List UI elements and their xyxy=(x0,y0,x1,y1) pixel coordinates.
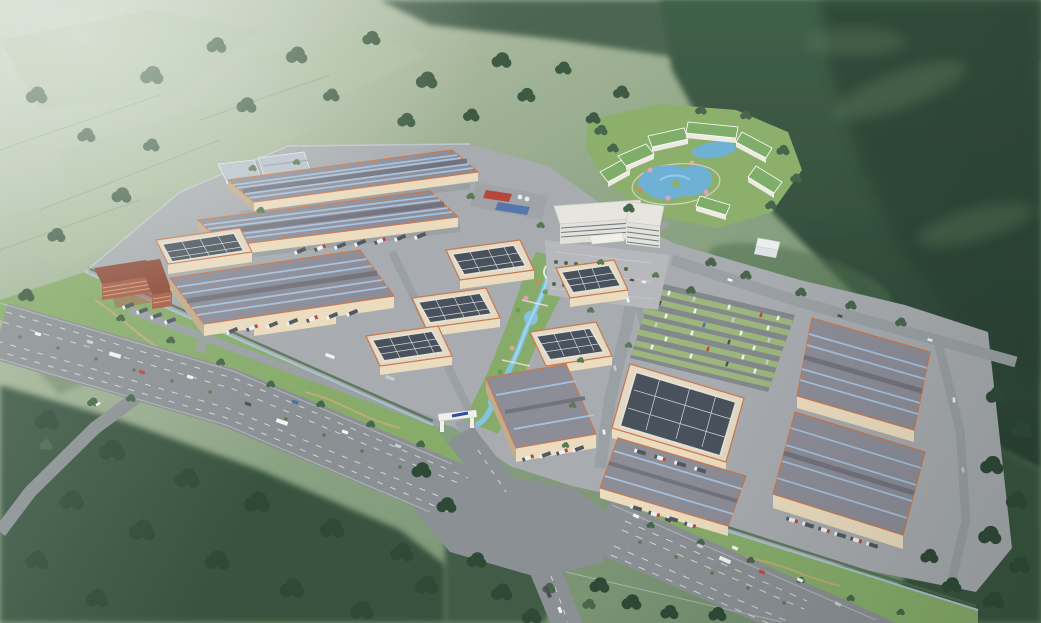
office-headquarters xyxy=(554,200,664,248)
aerial-render-industrial-park: Aerial rendering of an industrial logist… xyxy=(0,0,1041,623)
render-canvas: Aerial rendering of an industrial logist… xyxy=(0,0,1041,623)
